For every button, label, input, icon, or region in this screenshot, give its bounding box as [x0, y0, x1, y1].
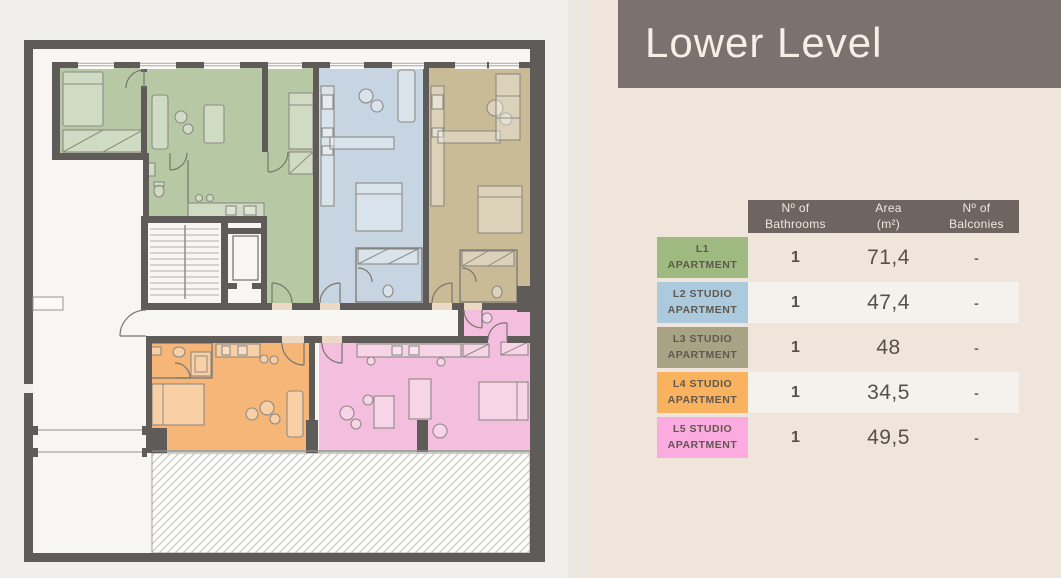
column-header-bathrooms: Nº of Bathrooms: [748, 200, 843, 233]
unit-label-l3: L3 STUDIO APARTMENT: [657, 327, 748, 368]
page-title: Lower Level: [618, 0, 1061, 86]
unit-label-l5: L5 STUDIO APARTMENT: [657, 417, 748, 458]
unit-label-l1: L1 APARTMENT: [657, 237, 748, 278]
title-bar: Lower Level: [618, 0, 1061, 88]
column-header-area: Area (m²): [843, 200, 934, 233]
area-value-l2: 47,4: [843, 282, 934, 323]
panel-edge-strip: [568, 0, 590, 578]
table-corner-cell: [657, 200, 748, 233]
area-value-l1: 71,4: [843, 237, 934, 278]
bathrooms-value-l2: 1: [748, 282, 843, 323]
unit-label-l4: L4 STUDIO APARTMENT: [657, 372, 748, 413]
area-value-l4: 34,5: [843, 372, 934, 413]
area-value-l5: 49,5: [843, 417, 934, 458]
elevator-floor: [231, 234, 261, 283]
bathrooms-value-l4: 1: [748, 372, 843, 413]
page: Lower Level Nº of Bathrooms Area (m²) Nº…: [0, 0, 1061, 578]
balconies-value-l1: -: [934, 237, 1019, 278]
balconies-value-l3: -: [934, 327, 1019, 368]
balconies-value-l4: -: [934, 372, 1019, 413]
floor-plan: [0, 0, 568, 578]
bathrooms-value-l5: 1: [748, 417, 843, 458]
bathrooms-value-l1: 1: [748, 237, 843, 278]
bathrooms-value-l3: 1: [748, 327, 843, 368]
balconies-value-l2: -: [934, 282, 1019, 323]
column-header-balconies: Nº of Balconies: [934, 200, 1019, 233]
balconies-value-l5: -: [934, 417, 1019, 458]
hatched-area: [152, 453, 530, 553]
area-value-l3: 48: [843, 327, 934, 368]
apartments-table: Nº of Bathrooms Area (m²) Nº of Balconie…: [657, 200, 1019, 458]
unit-label-l2: L2 STUDIO APARTMENT: [657, 282, 748, 323]
